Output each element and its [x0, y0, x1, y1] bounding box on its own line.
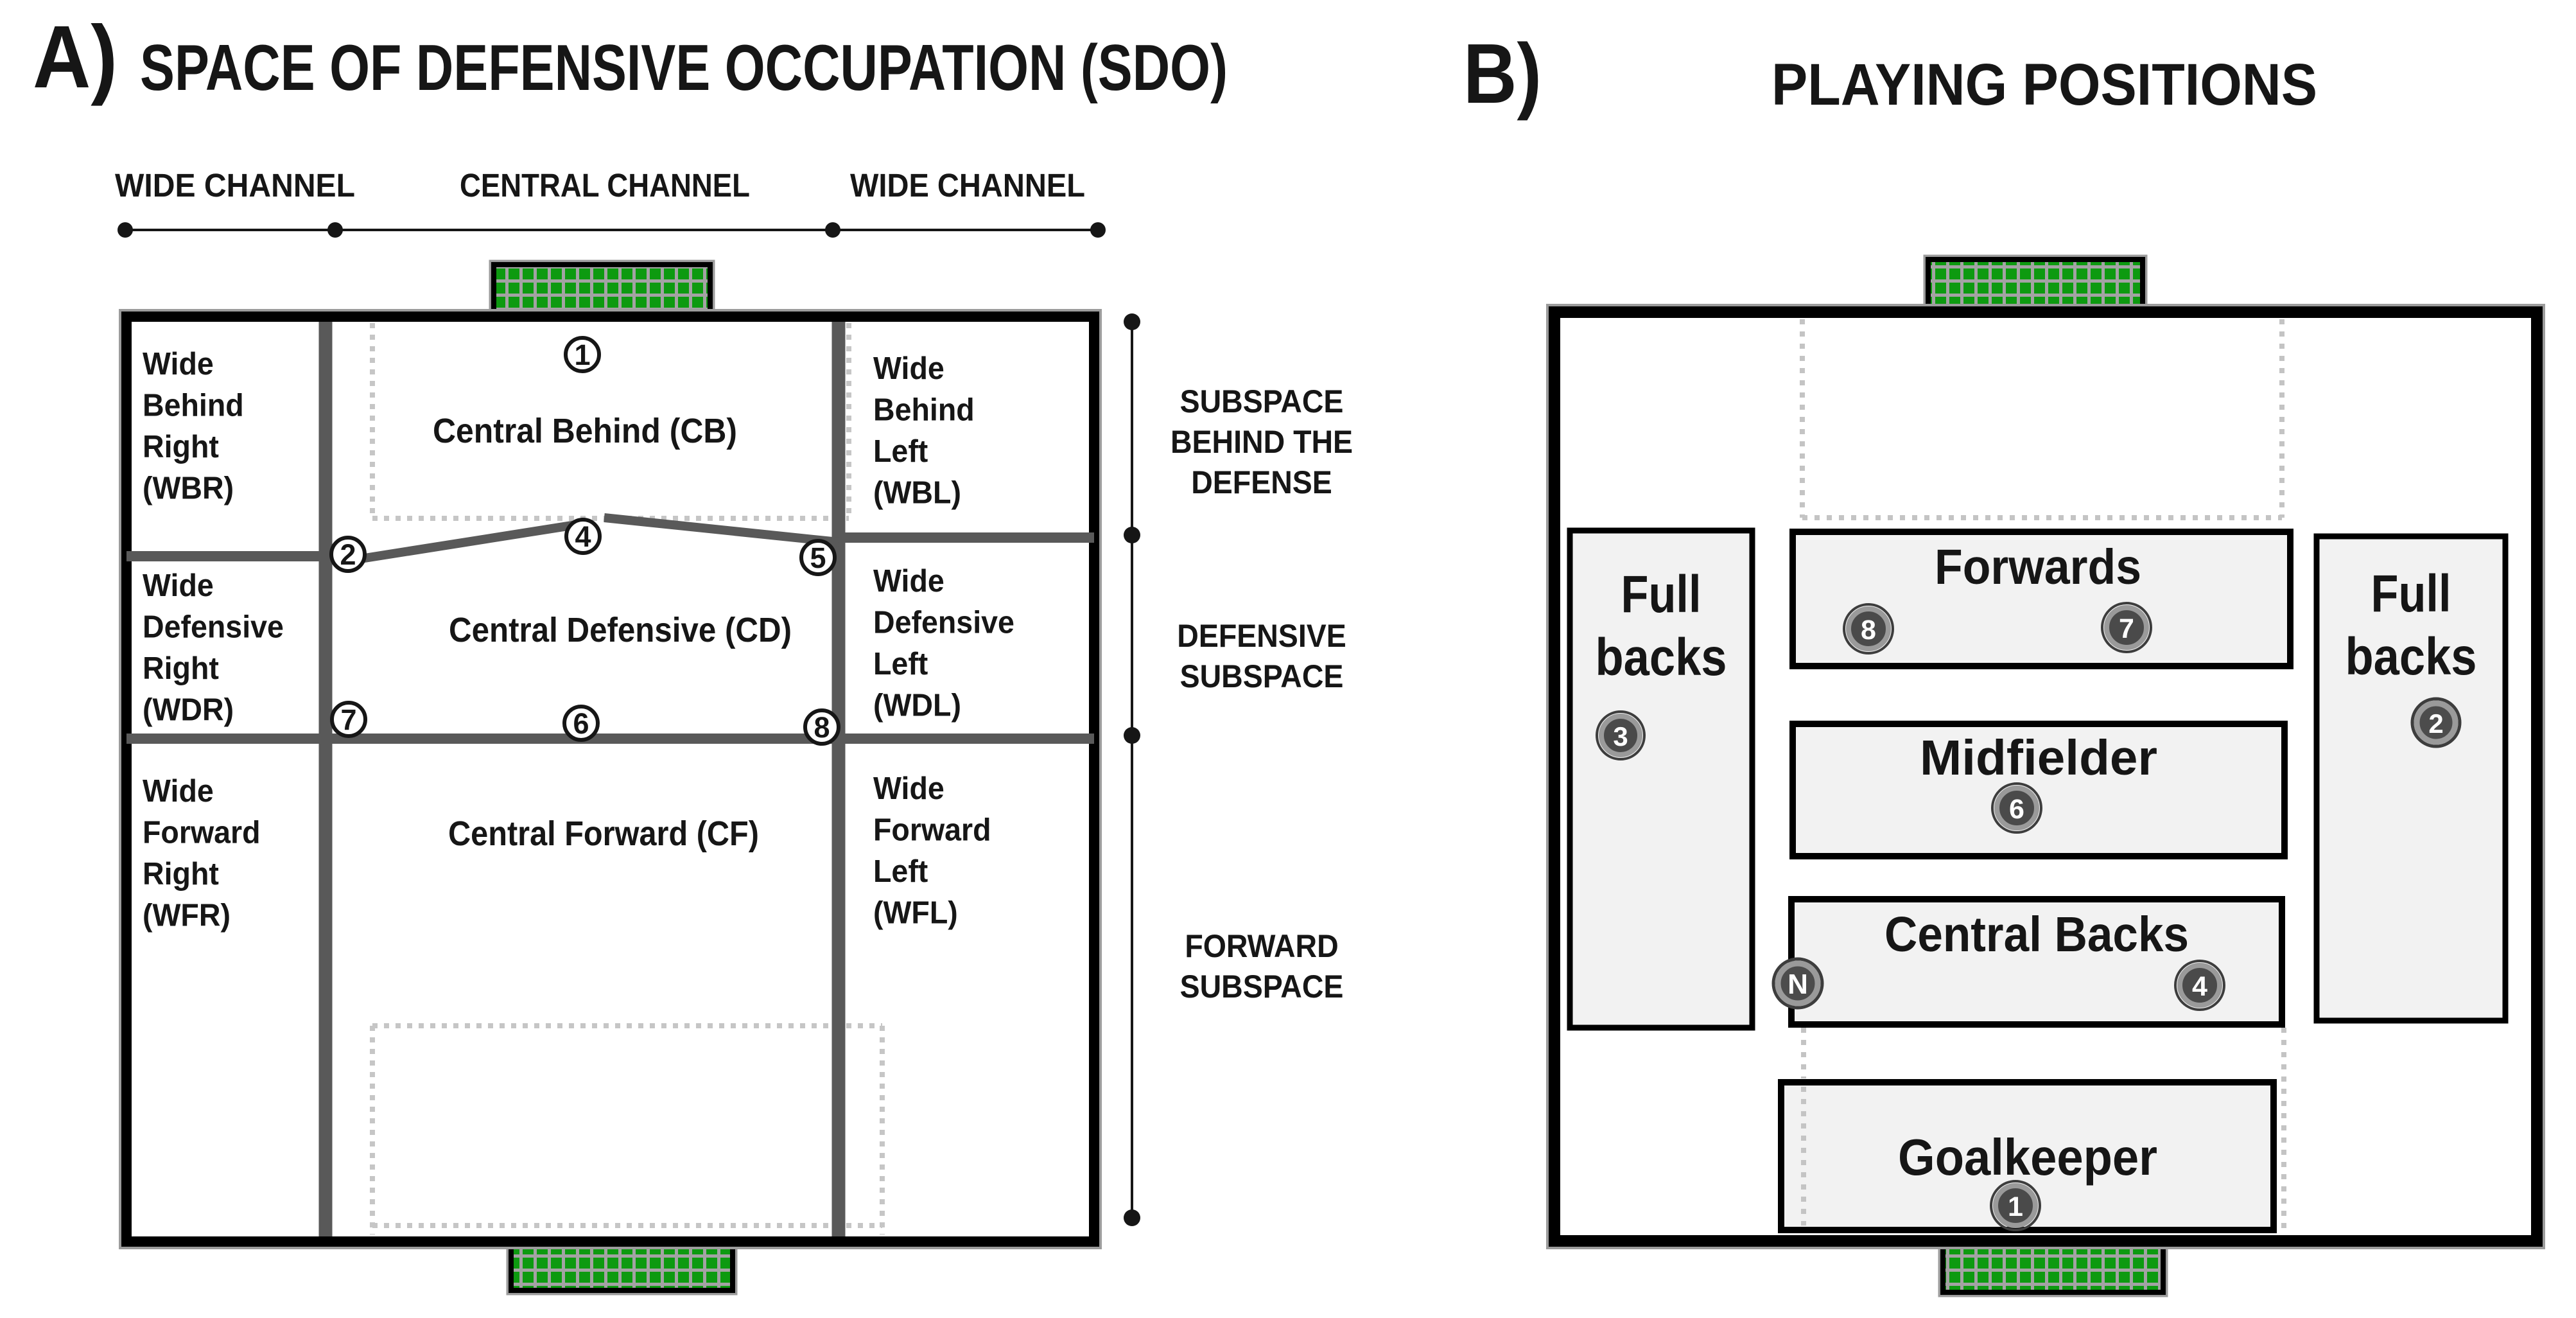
- svg-text:4: 4: [2192, 971, 2207, 1002]
- svg-text:B): B): [1463, 26, 1542, 121]
- svg-text:Central Behind (CB): Central Behind (CB): [433, 412, 737, 450]
- svg-text:N: N: [1788, 969, 1808, 1000]
- svg-text:2: 2: [2428, 708, 2443, 739]
- svg-text:Central Backs: Central Backs: [1884, 907, 2189, 962]
- svg-text:6: 6: [2009, 794, 2024, 825]
- svg-text:WIDE CHANNEL: WIDE CHANNEL: [115, 167, 355, 204]
- svg-text:1: 1: [574, 338, 590, 371]
- svg-text:7: 7: [340, 703, 356, 736]
- svg-text:WIDE CHANNEL: WIDE CHANNEL: [850, 167, 1085, 204]
- svg-text:7: 7: [2119, 613, 2134, 644]
- svg-text:SUBSPACEBEHIND THEDEFENSE: SUBSPACEBEHIND THEDEFENSE: [1171, 383, 1353, 500]
- svg-text:6: 6: [573, 707, 589, 740]
- svg-text:Central Defensive (CD): Central Defensive (CD): [449, 611, 792, 649]
- svg-text:8: 8: [1861, 615, 1876, 646]
- svg-text:PLAYING POSITIONS: PLAYING POSITIONS: [1771, 52, 2317, 118]
- svg-text:1: 1: [2008, 1191, 2023, 1222]
- svg-text:Midfielder: Midfielder: [1920, 730, 2157, 786]
- svg-text:Goalkeeper: Goalkeeper: [1898, 1129, 2157, 1186]
- svg-text:3: 3: [1613, 721, 1628, 751]
- svg-text:Forwards: Forwards: [1935, 540, 2141, 595]
- svg-text:A): A): [33, 8, 117, 107]
- svg-text:5: 5: [810, 541, 826, 574]
- svg-text:8: 8: [814, 711, 830, 744]
- svg-text:SPACE OF DEFENSIVE OCCUPATION: SPACE OF DEFENSIVE OCCUPATION (SDO): [140, 32, 1228, 104]
- svg-text:Central Forward (CF): Central Forward (CF): [448, 814, 759, 853]
- svg-text:CENTRAL CHANNEL: CENTRAL CHANNEL: [460, 167, 750, 204]
- svg-text:4: 4: [575, 520, 591, 553]
- svg-text:2: 2: [340, 538, 356, 571]
